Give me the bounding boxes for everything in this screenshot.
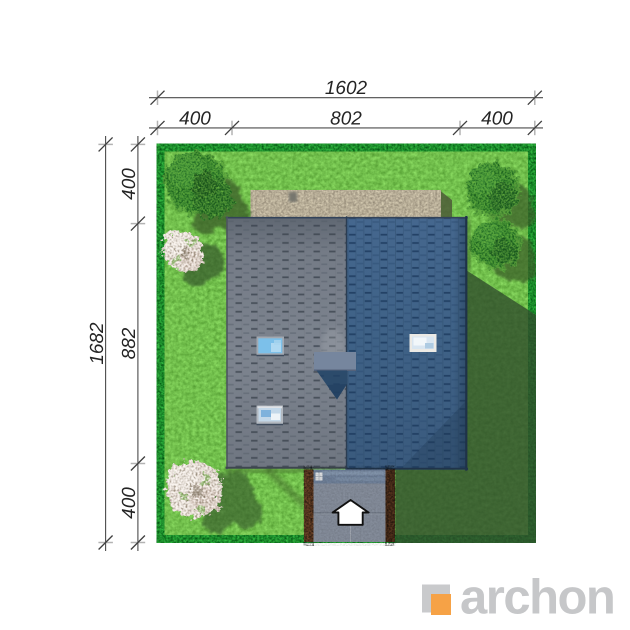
- svg-text:400: 400: [481, 109, 513, 130]
- svg-text:882: 882: [119, 327, 140, 359]
- svg-text:1682: 1682: [87, 322, 108, 365]
- svg-text:1602: 1602: [325, 78, 368, 99]
- svg-text:400: 400: [179, 109, 211, 130]
- svg-text:archon: archon: [460, 571, 614, 625]
- svg-text:400: 400: [119, 168, 140, 200]
- svg-text:802: 802: [330, 109, 362, 130]
- svg-text:400: 400: [119, 487, 140, 519]
